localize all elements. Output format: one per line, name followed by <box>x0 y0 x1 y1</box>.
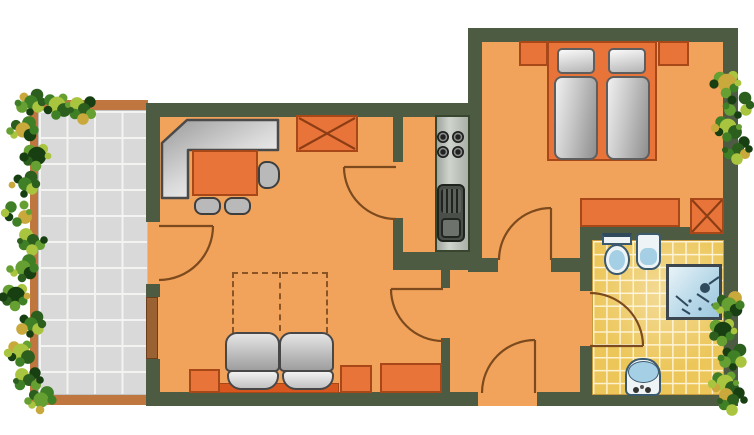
wall-right <box>723 28 738 406</box>
wall-bedroom-door-right <box>551 258 580 272</box>
wall-left-lower <box>146 359 160 393</box>
pillow-icon <box>608 48 646 74</box>
wall-left-mid <box>146 284 160 297</box>
chair-icon <box>258 161 280 189</box>
wall-kitchen-left-lower <box>393 218 403 252</box>
balcony-tiles-icon <box>38 110 148 395</box>
sink-drainboard <box>441 189 461 213</box>
wall-hall-bath-lower <box>580 346 592 395</box>
corner-cabinet <box>380 363 442 393</box>
stove-icon <box>452 146 464 158</box>
chair-icon <box>224 197 251 215</box>
wall-hall-left-upper <box>441 266 450 288</box>
stove-icon <box>437 131 449 143</box>
hall-floor <box>445 264 590 406</box>
stove-icon <box>437 146 449 158</box>
bidet-inner <box>640 248 657 265</box>
wall-hall-left-lower <box>441 338 450 392</box>
dining-table-icon <box>192 150 258 196</box>
plant-icon <box>0 284 30 311</box>
wall-top-bedroom <box>470 28 738 42</box>
mattress <box>606 76 650 160</box>
balcony-frame-top <box>30 100 148 110</box>
wall-kitchen-left-upper <box>393 117 403 162</box>
mattress <box>554 76 598 160</box>
wall-bedroom-door-left <box>468 258 498 272</box>
plant-icon <box>1 201 32 227</box>
sofa-bed-icon <box>279 332 334 372</box>
pillow-icon <box>557 48 595 74</box>
shower-icon <box>666 264 722 320</box>
nightstand-icon <box>519 41 548 66</box>
fold-out-bed-divider <box>279 272 281 331</box>
balcony-frame-left <box>30 100 38 406</box>
wardrobe-x-icon <box>690 198 724 234</box>
sink-bowl <box>441 218 461 238</box>
wardrobe-x-icon <box>296 115 358 152</box>
wall-kitchen-bedroom <box>468 28 482 266</box>
washbasin-bowl <box>628 361 659 383</box>
side-table-icon <box>340 365 372 393</box>
stove-icon <box>452 131 464 143</box>
sofa-seat-cushion <box>282 370 334 390</box>
dresser-icon <box>580 198 680 227</box>
sofa-bed-icon <box>225 332 280 372</box>
balcony-frame-bottom <box>30 395 148 405</box>
chair-icon <box>194 197 221 215</box>
side-table-icon <box>189 369 220 393</box>
toilet-bowl-inner <box>609 250 625 270</box>
window-icon <box>146 297 158 359</box>
wall-bottom-left <box>146 392 478 406</box>
nightstand-icon <box>658 41 689 66</box>
sofa-seat-cushion <box>227 370 279 390</box>
apartment-floor-plan <box>0 0 754 435</box>
